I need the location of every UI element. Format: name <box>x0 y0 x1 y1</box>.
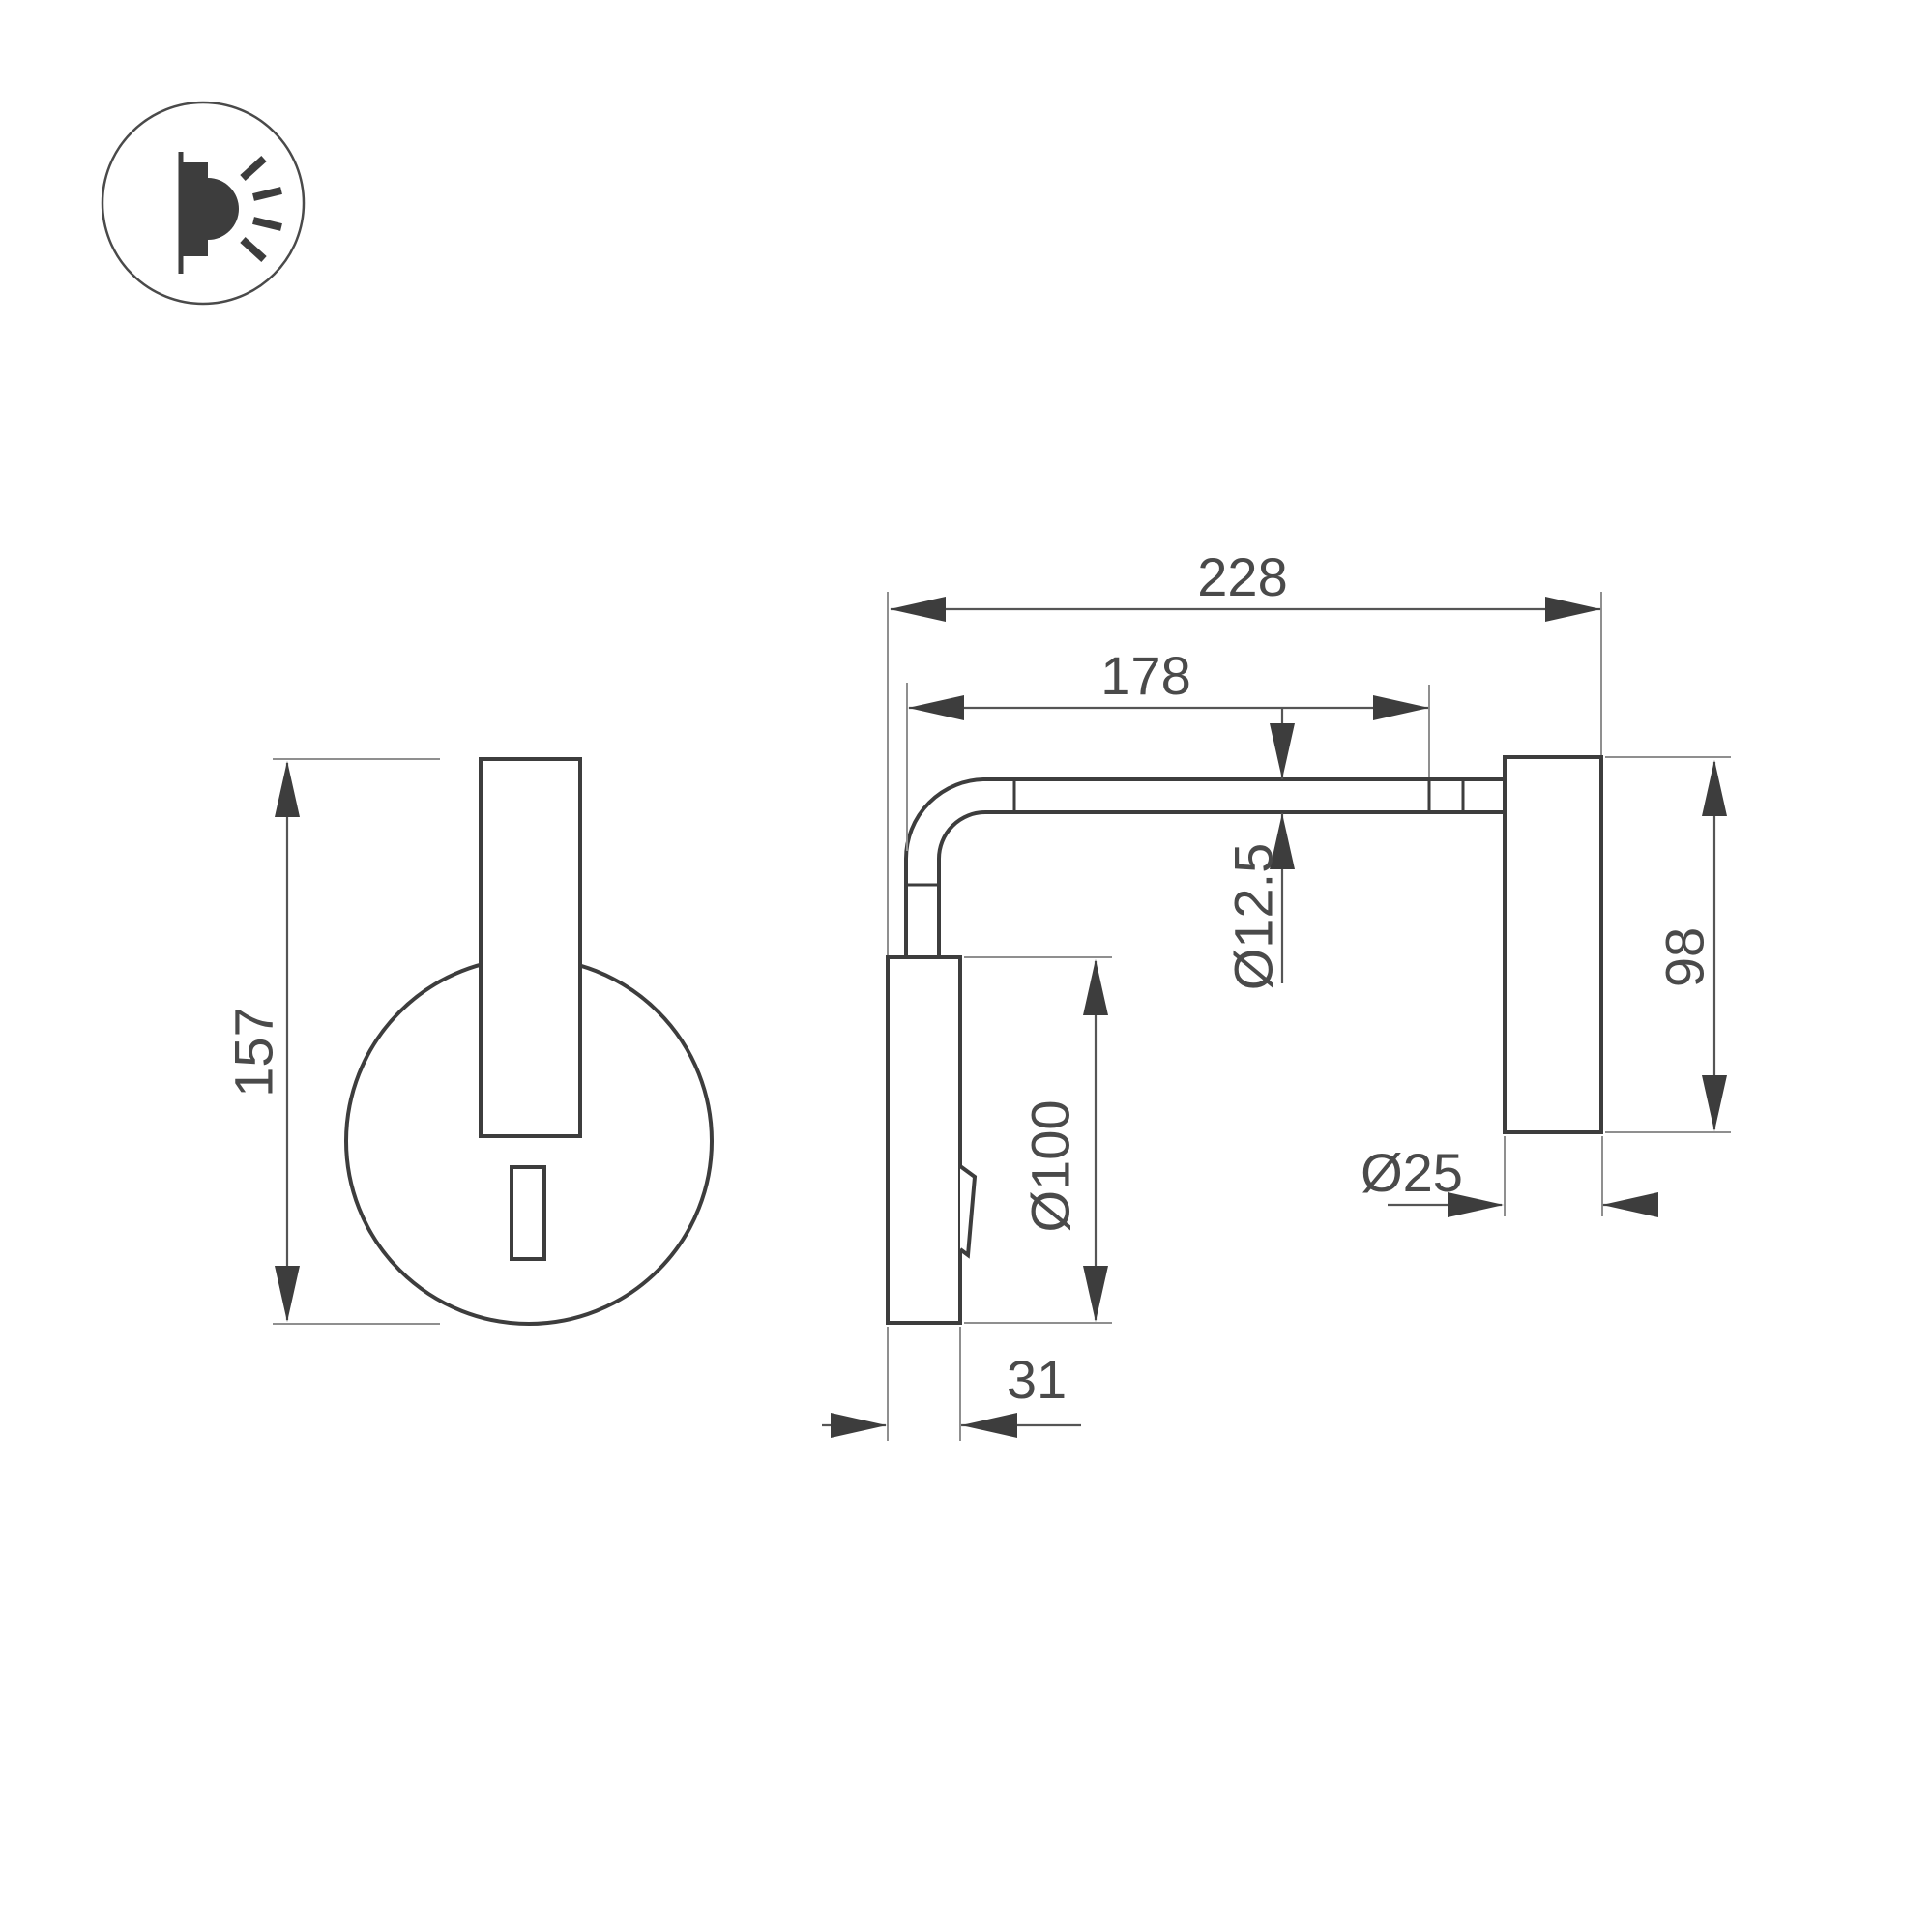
icon-lamp-body <box>183 162 208 256</box>
arrow-down <box>1270 723 1295 779</box>
front-view: 157 <box>223 759 712 1324</box>
dim-label-157: 157 <box>223 1007 284 1097</box>
drawing-canvas: 157 228 <box>0 0 1932 1932</box>
dimension-arm-diameter: Ø12.5 <box>1223 709 1295 990</box>
side-view: 228 178 Ø12.5 <box>822 546 1731 1441</box>
arrow-right <box>1373 695 1429 720</box>
side-switch-lever <box>960 1166 975 1255</box>
arrow-down <box>1083 1266 1108 1322</box>
side-base-plate <box>888 957 960 1323</box>
dim-label-12-5: Ø12.5 <box>1223 843 1284 991</box>
dim-label-178: 178 <box>1100 645 1190 706</box>
front-lamp-tube <box>481 759 580 1136</box>
side-lamp-head <box>1505 757 1601 1132</box>
arrow-down <box>275 1266 300 1322</box>
arrow-left <box>1602 1192 1658 1217</box>
arrow-up <box>1702 760 1727 816</box>
arrow-left <box>961 1413 1017 1438</box>
side-arm-tube <box>906 779 1505 957</box>
dim-label-100: Ø100 <box>1020 1100 1081 1233</box>
arrow-right <box>831 1413 887 1438</box>
dimension-plate-diameter: Ø100 <box>964 957 1112 1323</box>
dim-label-98: 98 <box>1654 927 1715 987</box>
wall-lamp-icon <box>102 102 304 304</box>
dim-label-25: Ø25 <box>1361 1142 1463 1203</box>
dim-label-31: 31 <box>1007 1349 1067 1410</box>
dimension-head-diameter: Ø25 <box>1361 1136 1658 1217</box>
arrow-up <box>275 761 300 817</box>
arrow-left <box>890 597 946 622</box>
arrow-left <box>908 695 964 720</box>
technical-drawing-svg: 157 228 <box>0 0 1932 1932</box>
dimension-31: 31 <box>822 1327 1081 1441</box>
arrow-right <box>1545 597 1601 622</box>
arrow-up <box>1083 959 1108 1015</box>
dimension-98: 98 <box>1605 757 1731 1132</box>
dim-label-228: 228 <box>1197 546 1287 607</box>
arrow-down <box>1702 1075 1727 1131</box>
front-switch <box>512 1167 544 1259</box>
dimension-178: 178 <box>907 645 1429 851</box>
